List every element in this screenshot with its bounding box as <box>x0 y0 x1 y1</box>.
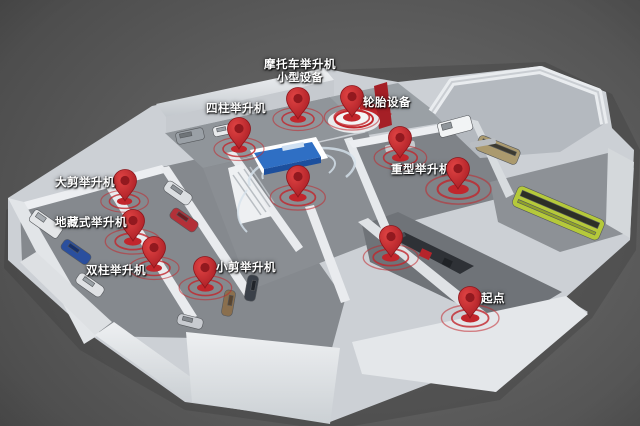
map-pin-heavy-duty-lift-b[interactable] <box>445 156 471 190</box>
map-pin-four-post-lift[interactable] <box>226 116 252 150</box>
pin-label-large-scissor-lift: 大剪举升机 <box>55 177 115 190</box>
pin-label-tire-equipment: 轮胎设备 <box>363 97 411 110</box>
map-pin-two-post-lift[interactable] <box>141 235 167 269</box>
showroom-isometric-map: 摩托车举升机小型设备 轮胎设备 四柱举升机 大剪举升机 <box>0 0 640 426</box>
map-pin-center-corridor[interactable] <box>285 164 311 198</box>
pin-label-four-post-lift: 四柱举升机 <box>206 103 266 116</box>
pin-label-motorcycle-lift-small-equipment: 摩托车举升机小型设备 <box>264 59 336 84</box>
map-pin-tire-equipment[interactable] <box>339 84 365 118</box>
pin-label-two-post-lift: 双柱举升机 <box>86 265 146 278</box>
map-pin-large-scissor-lift[interactable] <box>112 168 138 202</box>
pins-layer: 摩托车举升机小型设备 轮胎设备 四柱举升机 大剪举升机 <box>0 0 640 426</box>
pin-label-start-point: 起点 <box>481 293 505 306</box>
pin-label-small-scissor-lift: 小剪举升机 <box>216 262 276 275</box>
pin-label-heavy-duty-lift-a: 重型举升机 <box>391 164 451 177</box>
map-pin-display-corridor[interactable] <box>378 224 404 258</box>
pin-label-in-ground-lift: 地藏式举升机 <box>55 217 127 230</box>
map-pin-start-point[interactable] <box>457 285 483 319</box>
map-pin-heavy-duty-lift-a[interactable] <box>387 125 413 159</box>
map-pin-small-scissor-lift[interactable] <box>192 255 218 289</box>
map-pin-motorcycle-lift-small-equipment[interactable] <box>285 86 311 120</box>
